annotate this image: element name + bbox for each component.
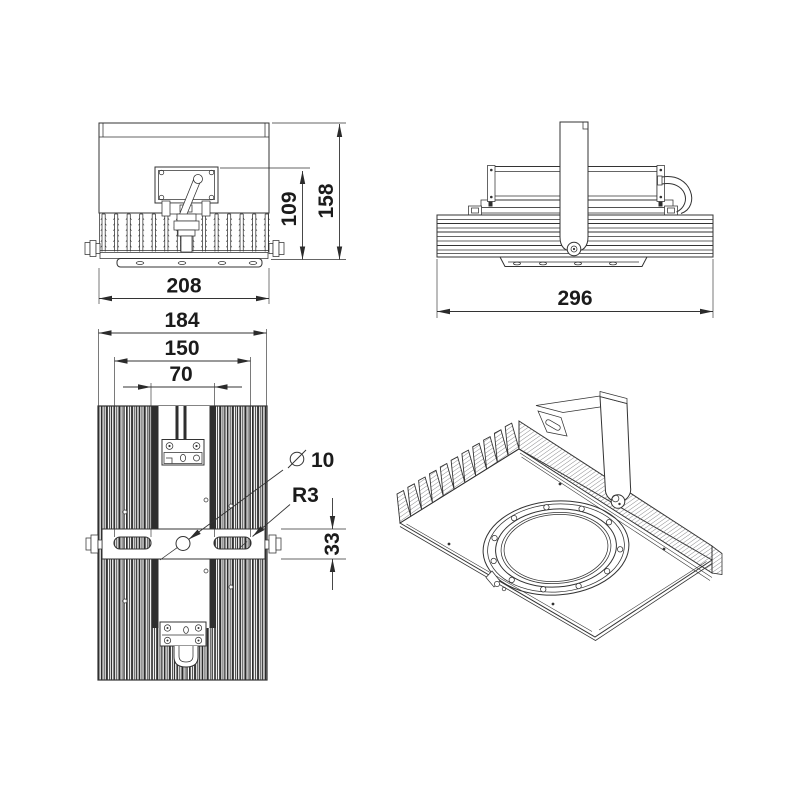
dimension-bracket-depth: 33 bbox=[281, 498, 346, 590]
mount-foot-left bbox=[469, 206, 482, 216]
dimension-front-width: 208 bbox=[99, 268, 269, 304]
center-cable-gland bbox=[174, 214, 199, 252]
side-view: 296 bbox=[437, 122, 713, 318]
dimension-front-overall-height: 158 bbox=[271, 123, 346, 260]
dim-text-208: 208 bbox=[166, 275, 201, 298]
dim-text-158: 158 bbox=[315, 183, 338, 218]
dimension-side-width: 296 bbox=[437, 259, 713, 318]
dim-text-150: 150 bbox=[164, 337, 199, 360]
cable-gland-right bbox=[269, 241, 284, 257]
dim-text-184: 184 bbox=[164, 309, 199, 332]
callout-text-hole-diameter: 10 bbox=[311, 449, 334, 472]
front-view: 208 109 158 bbox=[85, 123, 346, 304]
mount-foot-right bbox=[665, 206, 678, 216]
dim-text-33: 33 bbox=[321, 532, 344, 555]
dim-text-109: 109 bbox=[278, 191, 301, 226]
diameter-icon bbox=[288, 450, 306, 468]
mounting-bracket-crossbar bbox=[86, 529, 281, 559]
dim-text-296: 296 bbox=[557, 287, 592, 310]
drawing-canvas: 208 109 158 bbox=[0, 0, 800, 800]
lens-housing-front bbox=[99, 251, 269, 268]
lens-housing-side bbox=[500, 257, 647, 267]
center-mount-hole bbox=[176, 537, 190, 551]
callout-text-slot-radius: R3 bbox=[292, 484, 319, 507]
mount-slot-left bbox=[114, 537, 151, 549]
dim-text-70: 70 bbox=[169, 363, 192, 386]
iso-extrusion-end-cap bbox=[712, 546, 722, 575]
isometric-view bbox=[397, 392, 722, 641]
mounting-yoke bbox=[560, 122, 588, 256]
cable-gland-left bbox=[85, 241, 100, 257]
channel-cable bbox=[176, 406, 179, 442]
top-cable-clamp bbox=[162, 440, 204, 466]
technical-drawing: 208 109 158 bbox=[0, 0, 800, 800]
top-view: 184 150 70 10 R3 bbox=[86, 309, 346, 680]
cable-u-loop bbox=[174, 646, 198, 667]
